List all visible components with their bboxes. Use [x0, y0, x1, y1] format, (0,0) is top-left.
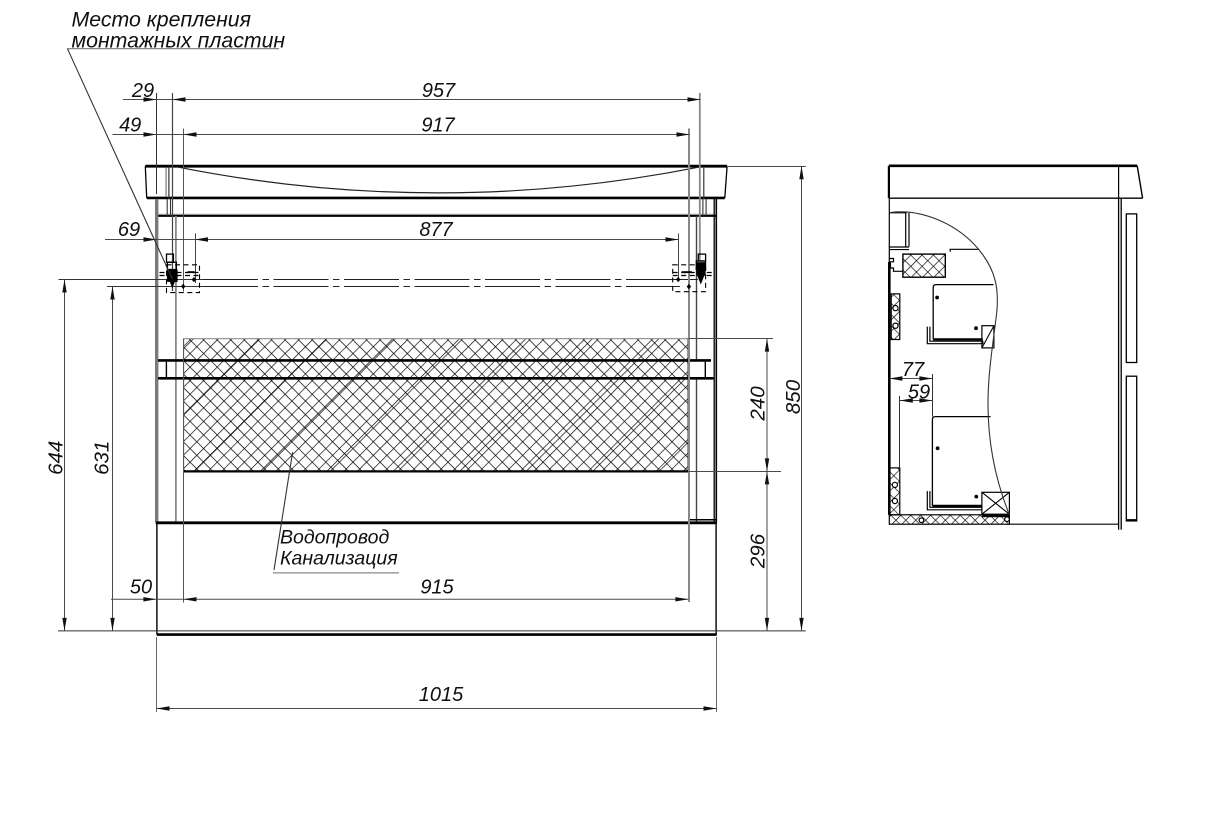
svg-text:240: 240 — [747, 386, 770, 422]
svg-text:77: 77 — [902, 359, 925, 381]
svg-text:915: 915 — [420, 577, 454, 599]
svg-text:631: 631 — [91, 441, 114, 475]
svg-text:917: 917 — [421, 114, 455, 136]
svg-text:49: 49 — [119, 114, 141, 136]
svg-text:50: 50 — [130, 577, 152, 599]
svg-text:Водопровод: Водопровод — [280, 527, 389, 549]
svg-text:957: 957 — [422, 80, 456, 102]
svg-text:644: 644 — [45, 441, 68, 475]
svg-text:69: 69 — [118, 219, 140, 241]
svg-text:1015: 1015 — [419, 684, 464, 706]
svg-text:Канализация: Канализация — [280, 547, 398, 569]
svg-text:296: 296 — [747, 533, 770, 569]
svg-text:59: 59 — [908, 381, 930, 403]
svg-text:850: 850 — [782, 379, 805, 414]
svg-text:877: 877 — [419, 219, 453, 241]
svg-text:29: 29 — [131, 80, 154, 102]
